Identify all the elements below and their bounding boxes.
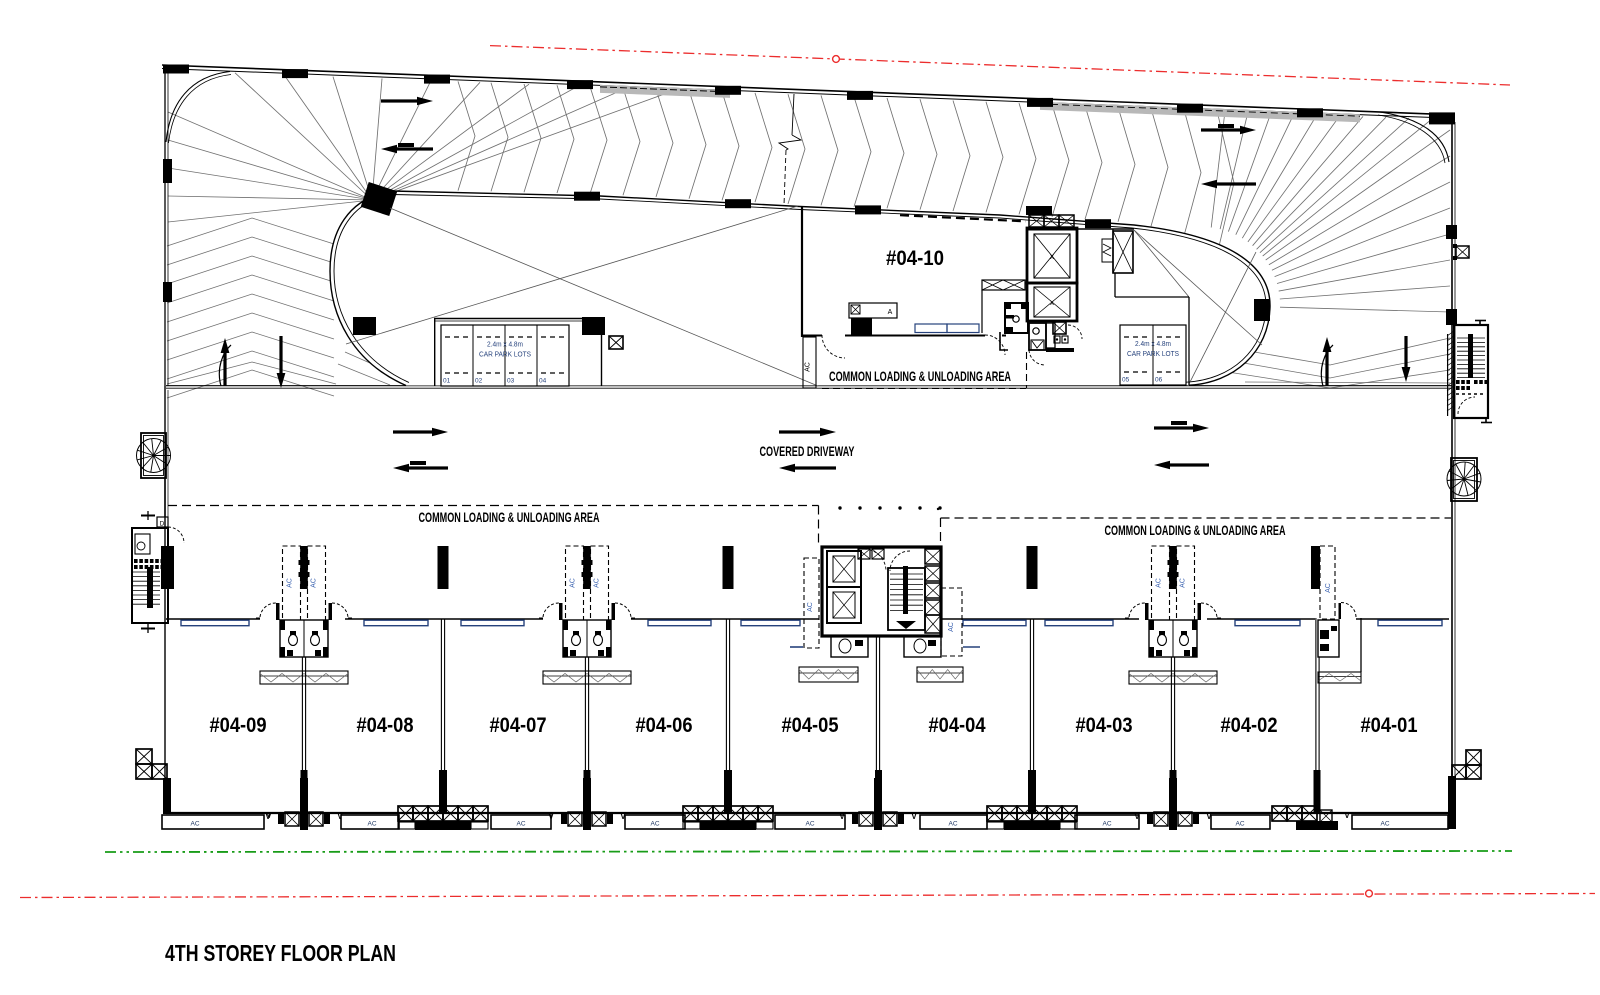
svg-text:#04-09: #04-09 [210,714,267,737]
svg-text:x: x [1050,298,1054,307]
svg-text:01: 01 [443,378,451,385]
svg-text:V: V [839,812,845,821]
svg-text:#04-04: #04-04 [929,714,986,737]
svg-text:V: V [911,812,917,821]
svg-text:AC: AC [1325,583,1332,593]
svg-text:2.4m x 4.8m: 2.4m x 4.8m [487,340,523,349]
svg-text:AC: AC [516,821,525,828]
svg-text:AC: AC [1235,821,1244,828]
svg-text:CAR PARK LOTS: CAR PARK LOTS [1127,349,1179,358]
svg-text:AC: AC [948,622,955,632]
svg-text:V: V [1206,812,1212,821]
svg-text:AC: AC [805,362,812,372]
svg-text:V: V [337,812,343,821]
svg-text:06: 06 [1155,377,1163,384]
svg-text:AC: AC [805,821,814,828]
svg-text:V: V [620,812,626,821]
svg-text:#04-07: #04-07 [490,714,547,737]
svg-text:CAR PARK LOTS: CAR PARK LOTS [479,350,531,359]
svg-text:COMMON LOADING & UNLOADING ARE: COMMON LOADING & UNLOADING AREA [1105,522,1286,538]
svg-text:AC: AC [190,821,199,828]
svg-text:COVERED DRIVEWAY: COVERED DRIVEWAY [760,444,855,459]
svg-text:AC: AC [1380,821,1389,828]
svg-text:05: 05 [1122,377,1130,384]
svg-text:#04-01: #04-01 [1361,714,1418,737]
svg-text:#04-02: #04-02 [1221,714,1278,737]
svg-text:#04-08: #04-08 [357,714,414,737]
svg-text:#04-10: #04-10 [886,247,944,270]
svg-text:AC: AC [807,602,814,612]
svg-text:COMMON LOADING & UNLOADING ARE: COMMON LOADING & UNLOADING AREA [829,368,1011,384]
svg-text:03: 03 [507,378,515,385]
svg-text:#04-06: #04-06 [636,714,693,737]
svg-text:AC: AC [311,578,318,588]
svg-text:AC: AC [1102,821,1111,828]
svg-text:AC: AC [948,821,957,828]
svg-text:#04-05: #04-05 [782,714,839,737]
svg-text:AC: AC [570,578,577,588]
svg-text:AC: AC [367,821,376,828]
svg-text:4TH STOREY FLOOR PLAN: 4TH STOREY FLOOR PLAN [165,940,396,966]
svg-text:AC: AC [594,578,601,588]
svg-text:AC: AC [1156,578,1163,588]
svg-text:AC: AC [287,578,294,588]
svg-text:04: 04 [539,378,547,385]
svg-text:#04-03: #04-03 [1076,714,1133,737]
svg-text:02: 02 [475,378,483,385]
svg-text:V: V [1344,811,1350,820]
svg-text:A: A [888,309,893,316]
svg-text:AC: AC [1180,578,1187,588]
svg-text:x: x [1050,252,1054,261]
svg-text:COMMON LOADING & UNLOADING ARE: COMMON LOADING & UNLOADING AREA [419,509,600,525]
svg-text:V: V [548,812,554,821]
svg-text:V: V [266,811,272,820]
svg-text:AC: AC [650,821,659,828]
svg-text:D: D [160,521,165,528]
svg-text:2.4m x 4.8m: 2.4m x 4.8m [1135,339,1171,348]
svg-text:V: V [1134,812,1140,821]
